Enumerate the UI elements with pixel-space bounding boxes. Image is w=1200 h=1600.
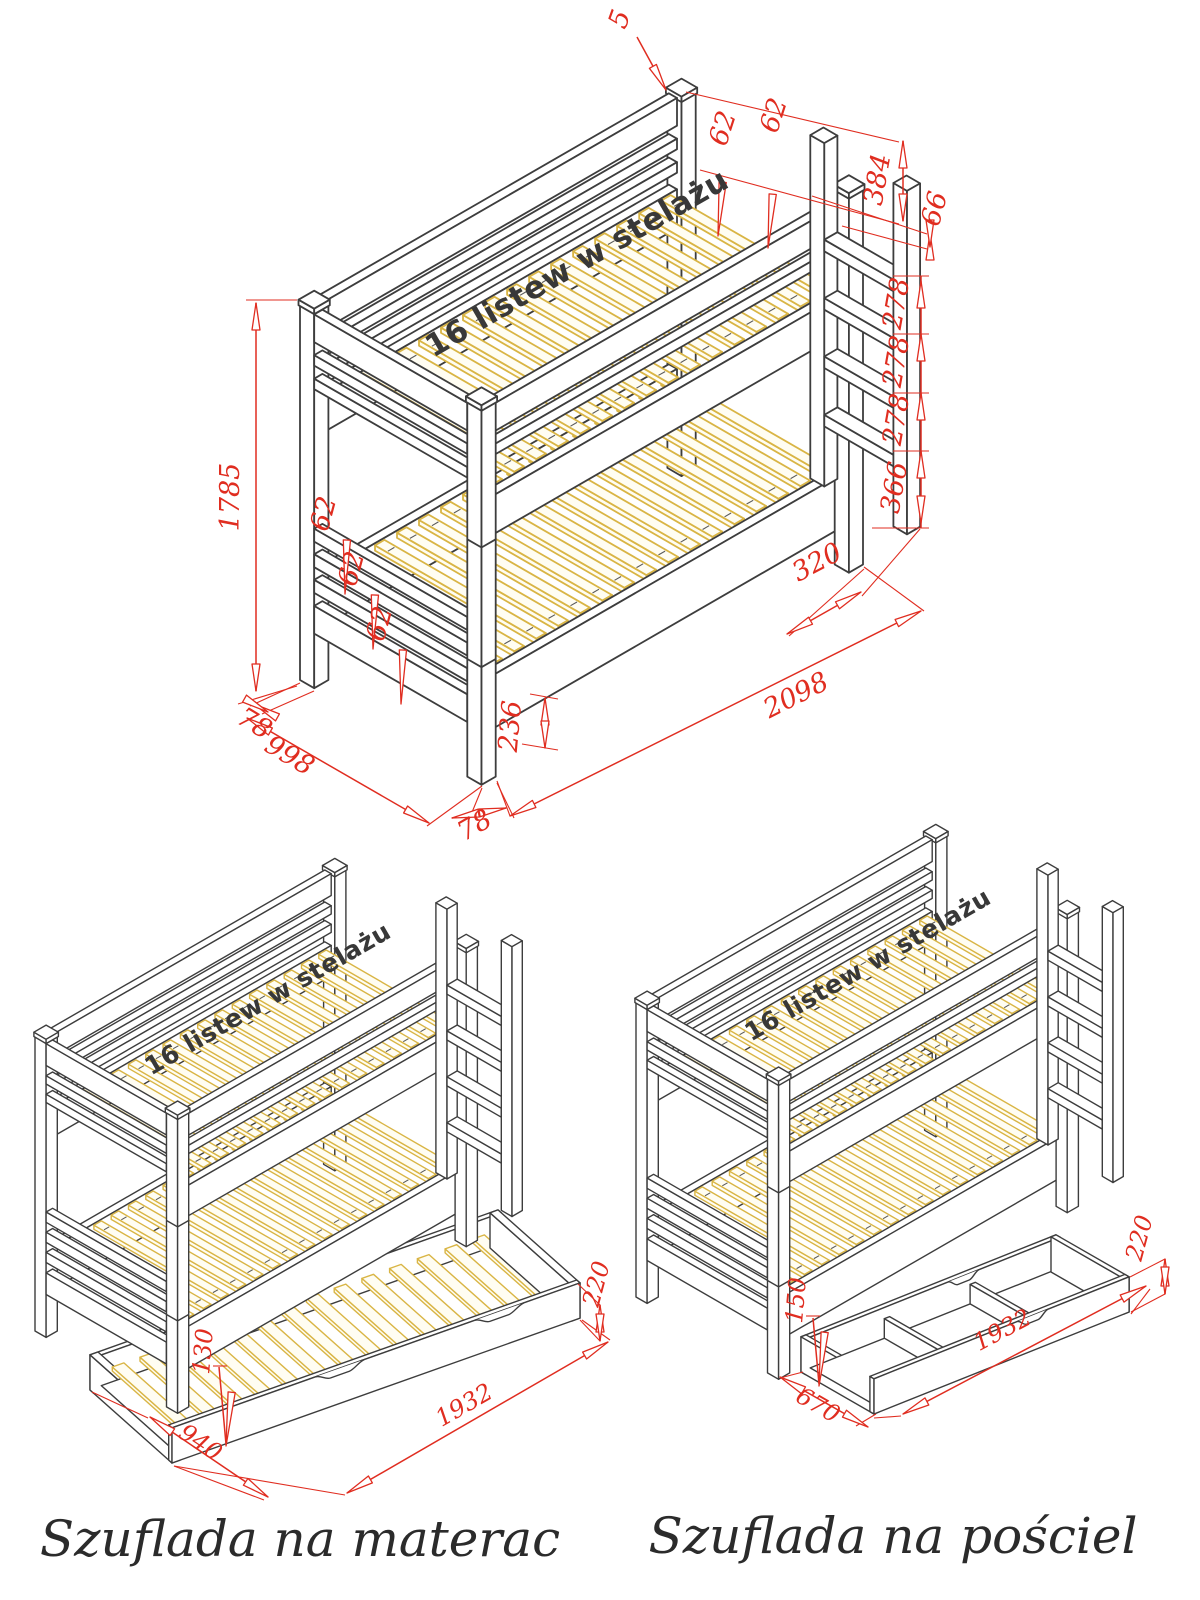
dim-main-rung-top-offset: 66 [915, 188, 954, 229]
dim-main-front-rail-bottom: 236 [493, 699, 528, 754]
dim-main-rear-gap-a: 62 [703, 107, 743, 149]
dim-mattress-slat-height: 130 [187, 1327, 219, 1375]
dim-main-height: 1785 [215, 463, 246, 532]
dim-mattress-front-height: 220 [577, 1258, 616, 1310]
dim-bedding-front-height: 220 [1120, 1212, 1159, 1264]
main-view: 16 listew w stelażu 1785 78 998 78 236 2… [215, 6, 954, 848]
technical-drawing: 16 listew w stelażu 1785 78 998 78 236 2… [0, 0, 1200, 1600]
main-bed-art [299, 79, 921, 785]
dim-main-width: 998 [259, 729, 319, 782]
dim-bedding-inner-height: 150 [780, 1276, 812, 1324]
dim-main-rear-gap-b: 62 [754, 94, 794, 136]
mattress-drawer-view: 16 listew w stelażu 130 940 1932 220 Szu… [34, 858, 616, 1568]
dim-main-head-top: 384 [858, 151, 897, 207]
dim-mattress-length: 1932 [431, 1378, 498, 1433]
dim-main-length: 2098 [758, 666, 834, 725]
caption-mattress-drawer: Szuflada na materac [40, 1510, 560, 1568]
page: 16 listew w stelażu 1785 78 998 78 236 2… [0, 0, 1200, 1600]
caption-bedding-drawer: Szuflada na pościel [649, 1507, 1138, 1565]
dim-main-post-cap: 5 [603, 6, 638, 33]
bedding-drawer-view: 16 listew w stelażu 150 670 1932 220 Szu… [635, 824, 1169, 1565]
